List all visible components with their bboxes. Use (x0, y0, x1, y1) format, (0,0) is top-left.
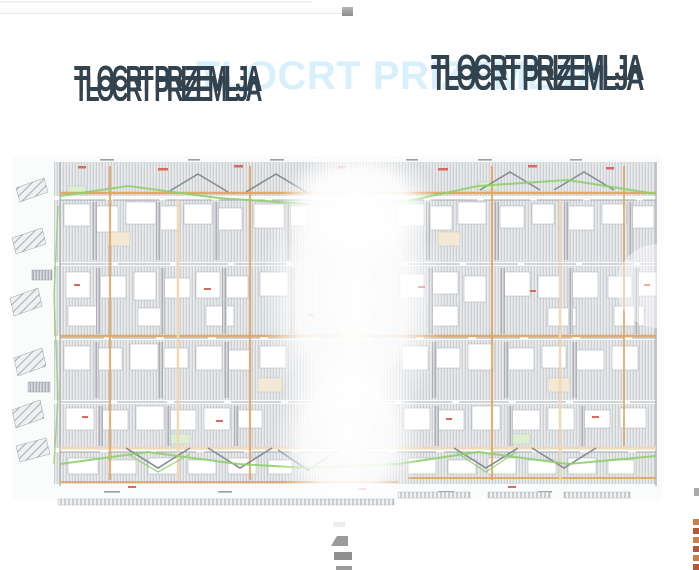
top-edge-line (0, 1, 312, 3)
page-title-left: TLOCRT PRIZEMLJA (74, 61, 259, 97)
bottom-artifact-bar (336, 566, 352, 570)
floor-plan-drawing (8, 146, 666, 510)
bottom-artifact-trapezoid (331, 536, 348, 546)
bottom-artifact-rect (334, 552, 352, 560)
right-edge-orange-dashes (693, 519, 699, 570)
right-edge-gray-mark (694, 488, 699, 496)
top-edge-handle (342, 7, 353, 16)
top-toolbar-edge (0, 8, 352, 14)
page-title-right: TLOCRT PRIZEMLJA (431, 50, 642, 86)
bottom-artifact-light (333, 522, 345, 527)
